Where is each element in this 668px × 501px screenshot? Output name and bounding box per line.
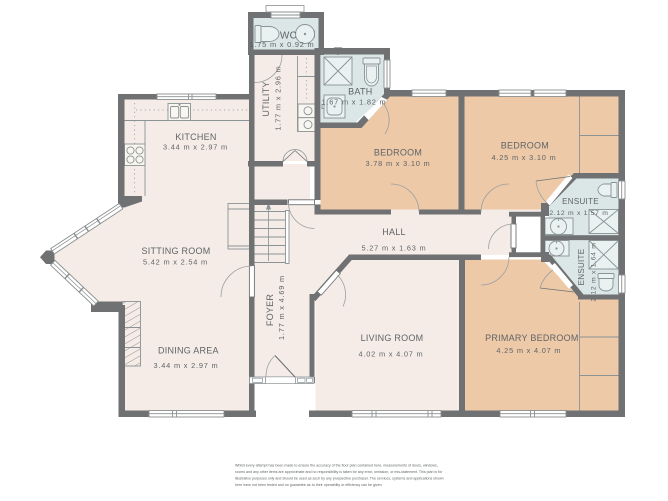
svg-text:BEDROOM: BEDROOM (374, 148, 422, 158)
svg-text:ENSUITE: ENSUITE (577, 249, 586, 286)
svg-text:rooms and any other items are: rooms and any other items are approximat… (235, 470, 443, 474)
svg-text:4.25 m x 3.10 m: 4.25 m x 3.10 m (492, 153, 557, 162)
svg-text:2.12 m x 1.64 m: 2.12 m x 1.64 m (591, 242, 598, 301)
svg-text:UTILITY: UTILITY (261, 81, 271, 116)
svg-text:illustrative purposes only and: illustrative purposes only and should be… (235, 477, 444, 481)
svg-text:4.25 m x 4.07 m: 4.25 m x 4.07 m (496, 346, 561, 355)
svg-text:5.27 m x 1.63 m: 5.27 m x 1.63 m (362, 244, 427, 253)
svg-text:HALL: HALL (382, 227, 406, 237)
svg-text:3.44 m x 2.97 m: 3.44 m x 2.97 m (154, 361, 219, 370)
svg-text:4.02 m x 4.07 m: 4.02 m x 4.07 m (359, 350, 424, 359)
svg-text:Whilst every attempt has been: Whilst every attempt has been made to en… (235, 464, 438, 468)
svg-text:1.77 m x 2.96 m: 1.77 m x 2.96 m (273, 66, 282, 131)
svg-text:here have not been tested and: here have not been tested and no guarant… (235, 483, 383, 487)
svg-text:LIVING ROOM: LIVING ROOM (361, 333, 424, 343)
svg-text:BATH: BATH (348, 87, 372, 97)
svg-text:2.12 m x 1.57 m: 2.12 m x 1.57 m (549, 210, 608, 217)
svg-text:1.77 m x 4.69 m: 1.77 m x 4.69 m (277, 275, 286, 340)
svg-text:BEDROOM: BEDROOM (501, 141, 549, 151)
svg-text:FOYER: FOYER (265, 294, 275, 327)
svg-text:SITTING ROOM: SITTING ROOM (142, 246, 211, 256)
svg-text:KITCHEN: KITCHEN (175, 132, 216, 142)
svg-text:5.42 m x 2.54 m: 5.42 m x 2.54 m (143, 258, 208, 267)
svg-text:3.78 m x 3.10 m: 3.78 m x 3.10 m (366, 159, 431, 168)
svg-text:PRIMARY BEDROOM: PRIMARY BEDROOM (485, 333, 578, 343)
svg-text:DINING AREA: DINING AREA (158, 346, 219, 356)
svg-text:3.44 m x 2.97 m: 3.44 m x 2.97 m (163, 143, 228, 152)
svg-text:1.75 m x 0.92 m: 1.75 m x 0.92 m (250, 40, 315, 49)
svg-text:ENSUITE: ENSUITE (562, 197, 599, 206)
svg-text:1.67 m x 1.82 m: 1.67 m x 1.82 m (322, 98, 387, 107)
